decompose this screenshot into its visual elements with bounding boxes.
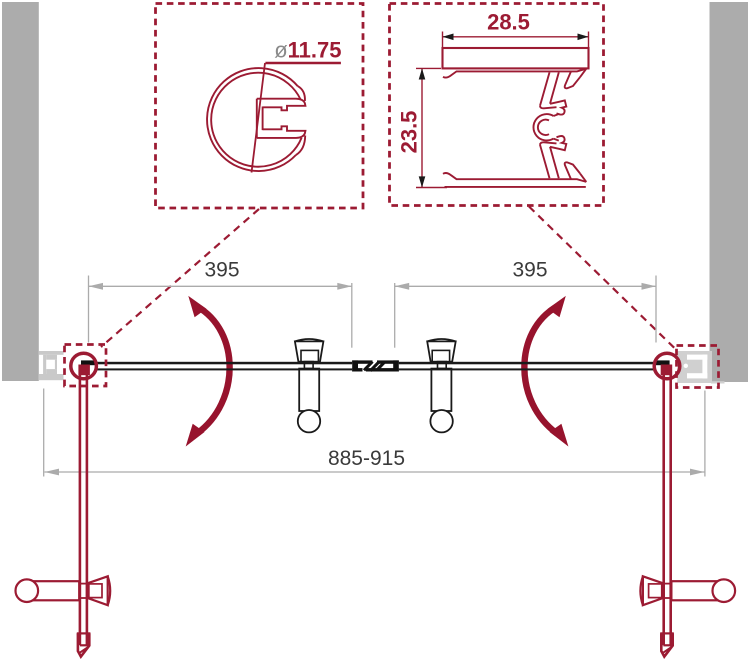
svg-text:ø11.75: ø11.75: [274, 38, 341, 63]
svg-text:885-915: 885-915: [328, 447, 405, 470]
svg-text:23.5: 23.5: [397, 111, 422, 154]
svg-text:395: 395: [512, 259, 547, 282]
svg-text:28.5: 28.5: [487, 10, 530, 35]
svg-text:395: 395: [204, 259, 239, 282]
